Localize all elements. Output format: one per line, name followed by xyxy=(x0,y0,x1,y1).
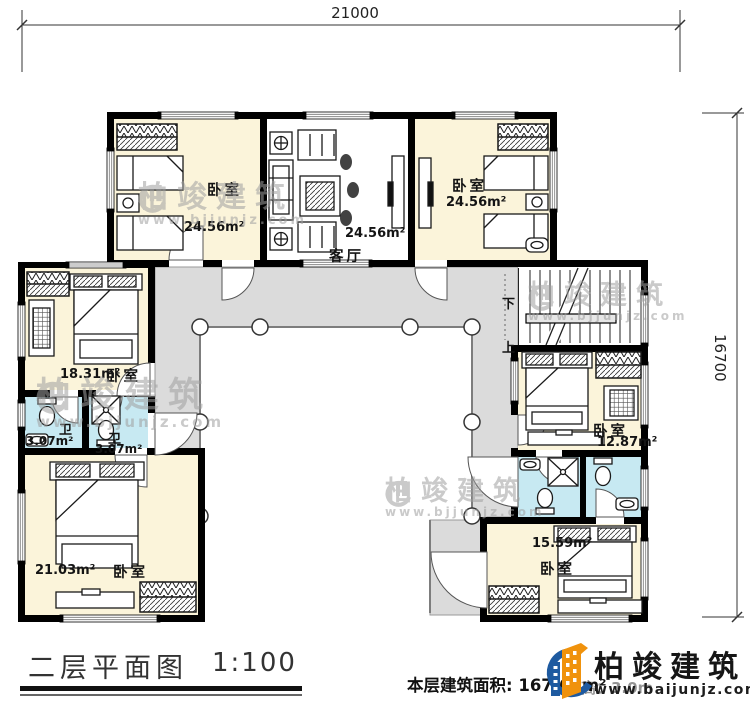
window xyxy=(107,148,114,212)
shower xyxy=(548,458,578,486)
sofa xyxy=(29,300,54,356)
nightstand xyxy=(526,194,548,210)
columns xyxy=(192,319,480,524)
sofa xyxy=(269,160,293,220)
window xyxy=(641,538,648,600)
double-bed xyxy=(50,462,144,568)
coffee-table xyxy=(300,176,340,216)
brand-logo-url: www.baijunjz.com xyxy=(594,682,750,698)
window xyxy=(303,112,373,119)
dresser xyxy=(558,598,642,613)
toilet xyxy=(38,398,56,426)
stairs-up-label: 上 xyxy=(502,337,515,356)
window xyxy=(66,262,126,268)
room-area-living-room: 24.56m² xyxy=(345,226,405,241)
side-table xyxy=(270,132,292,154)
wardrobe xyxy=(140,582,196,612)
brand-logo-name: 柏竣建筑 xyxy=(594,642,746,686)
wardrobe xyxy=(498,124,548,150)
room-label-living-room: 客厅 xyxy=(329,245,364,266)
twin-bed xyxy=(484,156,548,190)
window xyxy=(18,302,25,360)
side-table xyxy=(270,228,292,250)
brand-logo-icon xyxy=(545,638,593,712)
window xyxy=(550,148,557,212)
wardrobe xyxy=(27,272,69,296)
window xyxy=(18,490,25,564)
dresser xyxy=(56,589,134,608)
room-area-bath-left-a: 3.07m² xyxy=(26,434,73,448)
room-area-bedroom-mid-right: 12.87m² xyxy=(597,435,657,450)
room-area-bedroom-top-right: 24.56m² xyxy=(446,195,506,210)
drawing-scale: 1:100 xyxy=(212,648,297,678)
tv-cabinet xyxy=(419,158,433,228)
window xyxy=(60,615,160,622)
window xyxy=(511,358,518,404)
window xyxy=(548,615,632,622)
room-label-bedroom-mid-left: 卧室 xyxy=(106,365,141,386)
sink xyxy=(520,459,540,470)
double-bed xyxy=(522,352,592,430)
room-area-bath-left-b: 3.07m² xyxy=(95,442,142,456)
wardrobe xyxy=(596,352,641,378)
room-area-bedroom-bottom-left: 21.03m² xyxy=(35,563,95,578)
room-area-bedroom-bottom-right: 15.59m² xyxy=(532,536,592,551)
stairs-down-label: 下 xyxy=(502,293,515,312)
window xyxy=(452,112,518,119)
window xyxy=(641,362,648,428)
room-label-bedroom-top-right: 卧室 xyxy=(452,175,487,196)
dimension-top: 21000 xyxy=(310,4,400,22)
floor-plan-drawing xyxy=(0,0,750,717)
floor-plan-page: 21000 16700 卧室 24.56m² 24.56m² 客厅 卧室 24.… xyxy=(0,0,750,717)
window xyxy=(641,466,648,510)
title-underline-thick xyxy=(20,686,302,691)
twin-bed xyxy=(117,216,183,250)
toilet xyxy=(594,458,612,486)
title-underline-thin xyxy=(20,694,302,696)
room-label-bedroom-bottom-right: 卧室 xyxy=(540,558,575,579)
window xyxy=(18,400,25,430)
nightstand xyxy=(117,194,139,212)
wardrobe xyxy=(117,124,177,150)
room-label-bedroom-bottom-left: 卧室 xyxy=(113,561,148,582)
room-label-bedroom-top-left: 卧室 xyxy=(207,179,242,200)
window xyxy=(641,292,648,346)
room-area-bedroom-top-left: 24.56m² xyxy=(184,220,244,235)
armchair xyxy=(298,130,336,160)
dimension-right: 16700 xyxy=(711,334,729,380)
window xyxy=(158,112,238,119)
shower xyxy=(92,396,120,424)
toilet xyxy=(536,489,554,515)
armchair xyxy=(604,386,638,420)
wardrobe xyxy=(489,586,539,613)
sink xyxy=(616,498,638,510)
basin xyxy=(526,238,548,252)
twin-bed xyxy=(117,156,183,190)
drawing-title: 二层平面图 xyxy=(28,646,188,685)
double-bed xyxy=(70,274,142,364)
